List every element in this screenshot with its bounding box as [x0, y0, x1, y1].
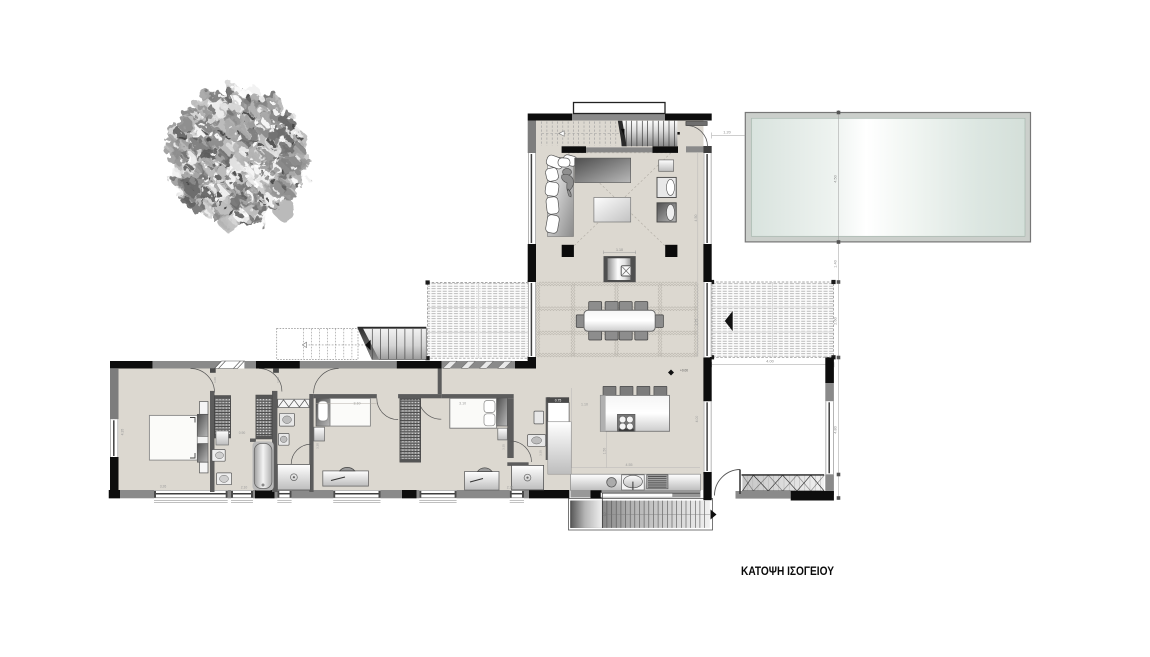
svg-text:1.10: 1.10 [581, 402, 588, 406]
svg-text:1.50: 1.50 [602, 448, 606, 455]
svg-text:3.35: 3.35 [502, 444, 506, 450]
svg-text:0.75: 0.75 [555, 399, 562, 403]
svg-text:2.10: 2.10 [507, 486, 514, 490]
svg-text:4.00: 4.00 [766, 360, 773, 364]
svg-text:ΚΑΤΟΨΗ ΙΣΟΓΕΙΟΥ: ΚΑΤΟΨΗ ΙΣΟΓΕΙΟΥ [741, 565, 834, 578]
svg-text:2.60: 2.60 [834, 317, 838, 324]
svg-text:4.35: 4.35 [121, 429, 125, 436]
svg-text:3.10: 3.10 [459, 402, 466, 406]
svg-text:0.90: 0.90 [239, 431, 246, 435]
svg-text:1.00: 1.00 [213, 377, 217, 383]
svg-text:3.35: 3.35 [539, 450, 543, 456]
svg-text:+0.00: +0.00 [680, 369, 688, 373]
svg-text:4.55: 4.55 [626, 463, 633, 467]
svg-text:4.50: 4.50 [694, 215, 698, 222]
svg-text:2.75: 2.75 [695, 319, 699, 326]
svg-text:2.10: 2.10 [241, 486, 248, 490]
svg-text:4.00: 4.00 [695, 416, 699, 423]
svg-text:1.10: 1.10 [616, 248, 623, 252]
svg-text:3.26: 3.26 [160, 484, 167, 488]
svg-text:1.20: 1.20 [723, 131, 730, 135]
svg-text:3.10: 3.10 [354, 402, 361, 406]
svg-text:4.80: 4.80 [834, 426, 838, 433]
svg-text:1.40: 1.40 [834, 260, 838, 267]
svg-text:1.00: 1.00 [276, 377, 280, 383]
svg-text:3.20: 3.20 [316, 443, 320, 449]
svg-text:4.50: 4.50 [834, 175, 838, 182]
